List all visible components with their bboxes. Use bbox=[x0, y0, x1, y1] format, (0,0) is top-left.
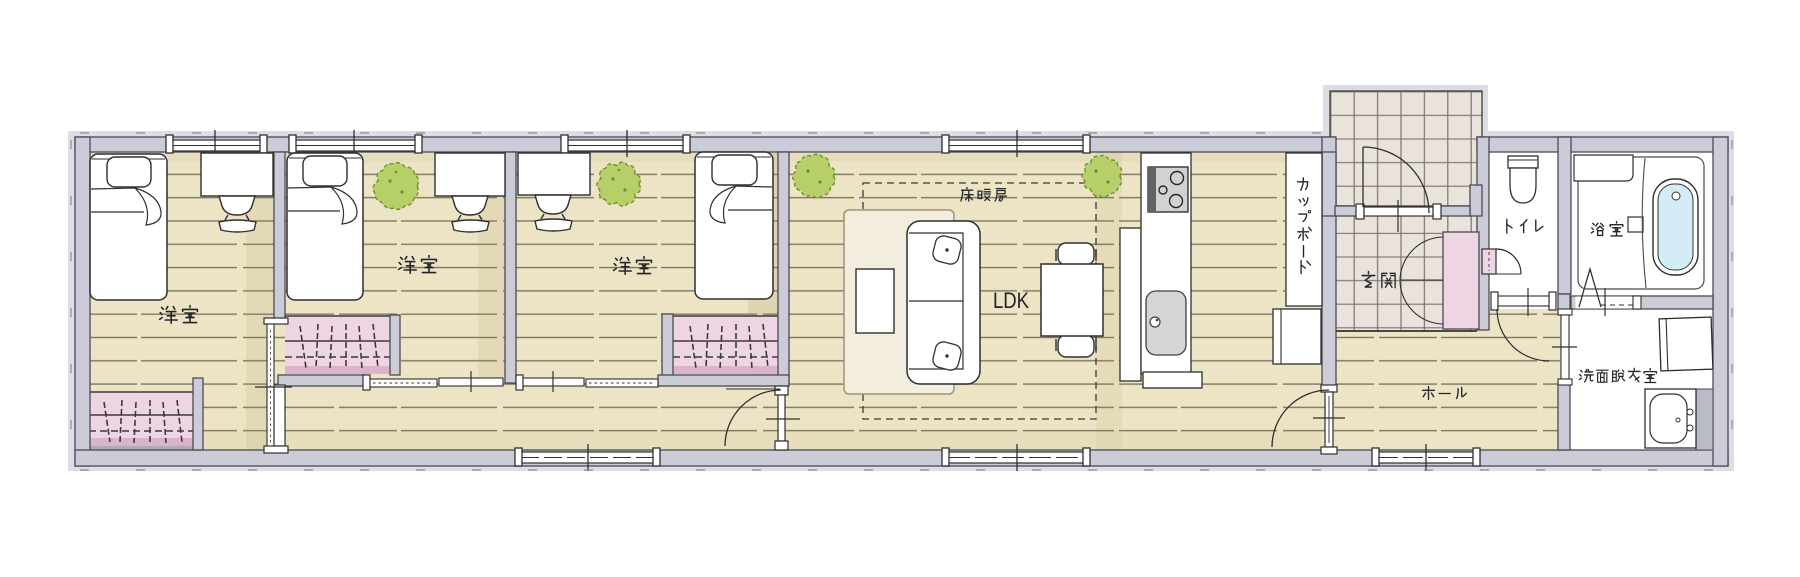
svg-text:LDK: LDK bbox=[993, 288, 1029, 313]
